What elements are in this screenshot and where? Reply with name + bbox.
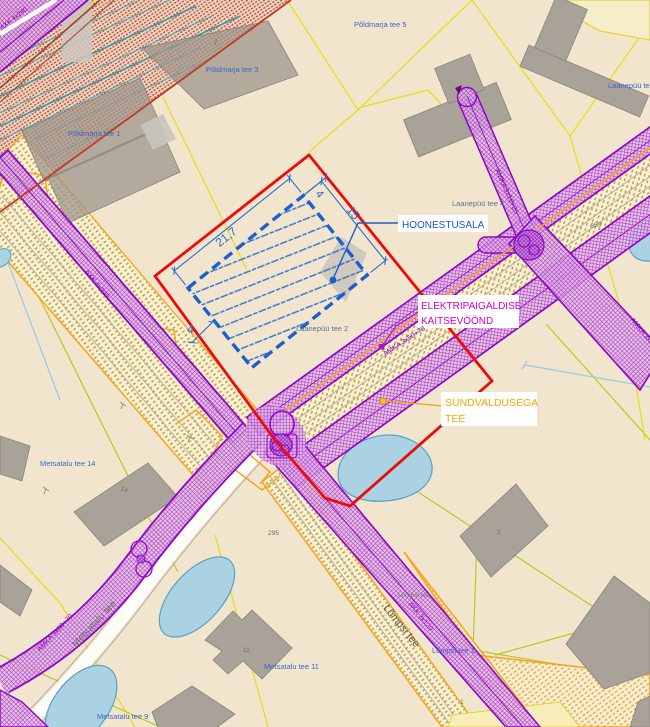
svg-text:HOONESTUSALA: HOONESTUSALA bbox=[402, 220, 485, 231]
svg-text:KAITSEVÖÖND: KAITSEVÖÖND bbox=[421, 315, 493, 327]
svg-text:Laanepüü tee: Laanepüü tee bbox=[608, 81, 650, 90]
svg-text:SUNDVALDUSEGA: SUNDVALDUSEGA bbox=[445, 397, 538, 409]
svg-text:Metsatalu tee 14: Metsatalu tee 14 bbox=[40, 459, 95, 468]
svg-text:Metsatalu tee 11: Metsatalu tee 11 bbox=[264, 662, 319, 671]
svg-text:Põldmarja tee 5: Põldmarja tee 5 bbox=[354, 20, 407, 29]
svg-text:Põldmarja tee 1: Põldmarja tee 1 bbox=[68, 129, 121, 138]
svg-text:Põldmarja tee 3: Põldmarja tee 3 bbox=[206, 65, 259, 74]
svg-text:ELEKTRIPAIGALDISE: ELEKTRIPAIGALDISE bbox=[421, 301, 522, 312]
svg-text:4: 4 bbox=[187, 322, 194, 336]
svg-text:Laanepüü tee 2: Laanepüü tee 2 bbox=[296, 324, 348, 333]
svg-text:1: 1 bbox=[460, 699, 464, 706]
svg-text:Laanepüü tee 4: Laanepüü tee 4 bbox=[452, 199, 504, 208]
svg-text:Metsatalu tee 9: Metsatalu tee 9 bbox=[97, 712, 148, 721]
svg-text:2: 2 bbox=[497, 529, 501, 536]
svg-text:295: 295 bbox=[268, 530, 279, 537]
svg-text:TEE: TEE bbox=[445, 413, 465, 425]
svg-text:Lõmpsi tee 1: Lõmpsi tee 1 bbox=[432, 646, 475, 655]
svg-text:Lõmpsi tee: Lõmpsi tee bbox=[398, 592, 430, 599]
svg-text:11: 11 bbox=[243, 647, 250, 654]
